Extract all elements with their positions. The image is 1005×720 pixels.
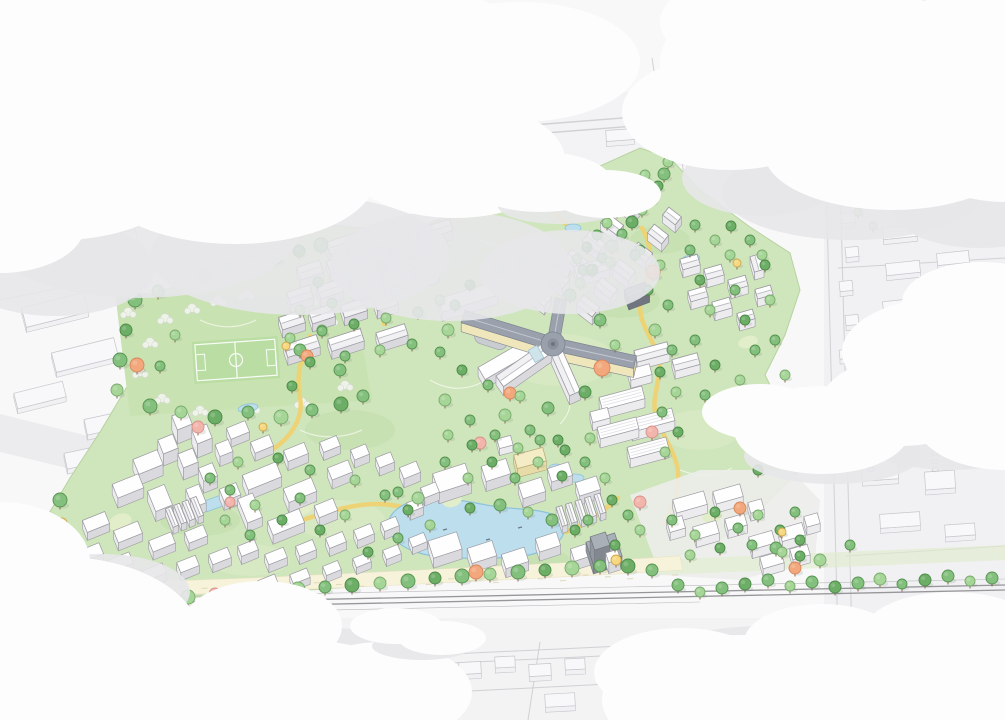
tree [233, 457, 243, 467]
tree [53, 493, 67, 507]
tree [305, 357, 315, 367]
tree [602, 218, 612, 228]
tree [765, 295, 775, 305]
tree [690, 220, 700, 230]
tree [511, 565, 525, 579]
tree [457, 365, 467, 375]
context-building [495, 656, 516, 668]
tree [111, 384, 123, 396]
shrub [120, 312, 126, 318]
tree [690, 530, 700, 540]
tree [607, 495, 617, 505]
tree [716, 582, 728, 594]
tree [673, 427, 683, 437]
tree [610, 340, 620, 350]
tree [143, 399, 157, 413]
tree [594, 560, 606, 572]
star-spire [551, 342, 555, 346]
tree [570, 525, 580, 535]
cloud-lobe [744, 604, 900, 680]
tree [695, 587, 705, 597]
tree [660, 447, 670, 457]
tree [363, 547, 373, 557]
tree [700, 390, 710, 400]
context-building [845, 246, 859, 257]
tree [710, 235, 720, 245]
tree [245, 530, 255, 540]
tree [897, 579, 907, 589]
tree [649, 324, 661, 336]
tree [469, 565, 483, 579]
tree [170, 330, 180, 340]
tree [557, 471, 567, 481]
tree [490, 430, 500, 440]
tree [690, 335, 700, 345]
tree [319, 581, 331, 593]
tree [795, 551, 805, 561]
tree [484, 568, 496, 580]
context-building [545, 693, 576, 708]
tree [242, 406, 254, 418]
shrub [202, 409, 208, 415]
tree [845, 540, 855, 550]
tree [710, 507, 720, 517]
tree [225, 497, 235, 507]
tree [762, 574, 774, 586]
tree [611, 555, 621, 565]
tree [695, 275, 705, 285]
tree [600, 473, 610, 483]
tree [789, 562, 801, 574]
tree [626, 216, 638, 228]
tree [565, 561, 579, 575]
context-building [839, 280, 853, 291]
tree [874, 573, 886, 585]
context-building [924, 470, 955, 490]
tree [439, 394, 451, 406]
tree [715, 543, 725, 553]
tree [393, 487, 403, 497]
tree [334, 397, 348, 411]
tree [515, 391, 525, 401]
cloud-lobe [398, 621, 486, 655]
shrub [347, 384, 353, 390]
tree [483, 380, 493, 390]
tree [208, 410, 222, 424]
tree [340, 351, 350, 361]
tree [393, 533, 403, 543]
shrub [184, 308, 190, 314]
tree [305, 465, 315, 475]
tree [965, 576, 975, 586]
tree [583, 515, 593, 525]
tree [814, 554, 826, 566]
tree [535, 435, 545, 445]
tree [806, 576, 818, 588]
tree [155, 361, 165, 371]
tree [533, 457, 543, 467]
tree [594, 360, 610, 376]
tree [205, 473, 215, 483]
tree [594, 314, 606, 326]
masterplan-illustration [0, 0, 1005, 720]
tree [315, 525, 325, 535]
tree [685, 245, 695, 255]
context-building [880, 512, 921, 529]
tree [499, 409, 511, 421]
tree [277, 515, 287, 525]
tree [455, 569, 469, 583]
tree [747, 540, 757, 550]
shrub [164, 397, 170, 403]
tree [440, 457, 450, 467]
shrub [130, 311, 136, 317]
tree [340, 510, 350, 520]
tree [646, 564, 658, 576]
tree [120, 324, 132, 336]
tree [733, 259, 741, 267]
tree [734, 502, 746, 514]
shrub [192, 410, 198, 416]
tree [465, 503, 475, 513]
cloud-lobe [551, 170, 661, 218]
tree [250, 500, 260, 510]
shrub [152, 341, 158, 347]
tree [777, 547, 787, 557]
tree [667, 515, 677, 525]
tree [513, 443, 523, 453]
tree [560, 445, 570, 455]
cloud-lobe [702, 384, 818, 440]
tree [745, 235, 755, 245]
tree [852, 577, 864, 589]
tree [658, 168, 670, 180]
tree [667, 345, 677, 355]
tree [785, 581, 795, 591]
tree [553, 435, 563, 445]
tree [306, 404, 318, 416]
masterplan-canvas [0, 0, 1005, 720]
tree [621, 559, 635, 573]
tree [740, 315, 750, 325]
tree [663, 300, 673, 310]
tree [739, 578, 751, 590]
cloud-shadow-lobe [480, 230, 660, 314]
shrub [157, 318, 163, 324]
cloud-lobe [95, 112, 375, 244]
tree [259, 423, 267, 431]
shrub [337, 385, 343, 391]
tree [435, 347, 445, 357]
tree [725, 250, 735, 260]
tree [942, 570, 954, 582]
context-building [529, 663, 552, 676]
tree [546, 514, 558, 526]
tree [285, 333, 295, 343]
tree [579, 386, 591, 398]
shrub [167, 317, 173, 323]
tree [585, 433, 595, 443]
tree [986, 572, 998, 584]
tree [463, 473, 473, 483]
tree [726, 221, 736, 231]
tree [710, 360, 720, 370]
tree [539, 564, 551, 576]
tree [282, 342, 290, 350]
tree [750, 345, 760, 355]
tree [345, 578, 359, 592]
tree [634, 496, 646, 508]
tree [381, 313, 391, 323]
tree [919, 574, 931, 586]
tree [350, 475, 360, 485]
tree [317, 326, 327, 336]
tree [442, 324, 454, 336]
tree [412, 492, 424, 504]
tree [735, 375, 745, 385]
tree [778, 528, 786, 536]
tree [274, 410, 288, 424]
context-building [945, 523, 976, 537]
tree [487, 457, 497, 467]
tree [657, 407, 667, 417]
tree [175, 406, 187, 418]
tree [770, 335, 780, 345]
tree [525, 425, 535, 435]
tree [429, 572, 441, 584]
cloud-lobe [594, 628, 770, 716]
tree [220, 515, 230, 525]
tree [655, 367, 665, 377]
tree [334, 364, 346, 376]
tree [374, 577, 386, 589]
tree [504, 387, 516, 399]
tree [375, 345, 385, 355]
tree [610, 540, 620, 550]
tree [760, 260, 770, 270]
tree [542, 402, 554, 414]
tree [192, 421, 204, 433]
tree [523, 507, 533, 517]
tree [295, 493, 305, 503]
tree [705, 305, 715, 315]
tree [780, 370, 790, 380]
tree [671, 387, 681, 397]
tree [635, 525, 645, 535]
tree [467, 440, 477, 450]
tree [425, 520, 435, 530]
context-building [565, 658, 586, 670]
tree [685, 550, 695, 560]
tree [510, 473, 520, 483]
shrub [194, 307, 200, 313]
tree [113, 353, 127, 367]
tree [357, 390, 369, 402]
tree [790, 507, 800, 517]
cloud-lobe [428, 144, 528, 192]
tree [795, 535, 805, 545]
tree [443, 430, 453, 440]
tree [225, 485, 235, 495]
tree [403, 505, 413, 515]
tree [753, 510, 763, 520]
tree [730, 285, 740, 295]
tree [465, 415, 475, 425]
soccer-pitch [192, 336, 281, 384]
tree [349, 319, 359, 329]
tree [407, 339, 417, 349]
tree [401, 574, 415, 588]
tree [829, 581, 841, 593]
tree [273, 453, 283, 463]
tree [580, 457, 590, 467]
tree [757, 250, 767, 260]
context-building [845, 314, 859, 325]
tree [623, 510, 633, 520]
shrub [142, 342, 148, 348]
tree [672, 579, 684, 591]
tree [287, 381, 297, 391]
tree [494, 499, 506, 511]
tree [130, 358, 144, 372]
tree [733, 523, 743, 533]
tree [646, 426, 658, 438]
tree [380, 490, 390, 500]
